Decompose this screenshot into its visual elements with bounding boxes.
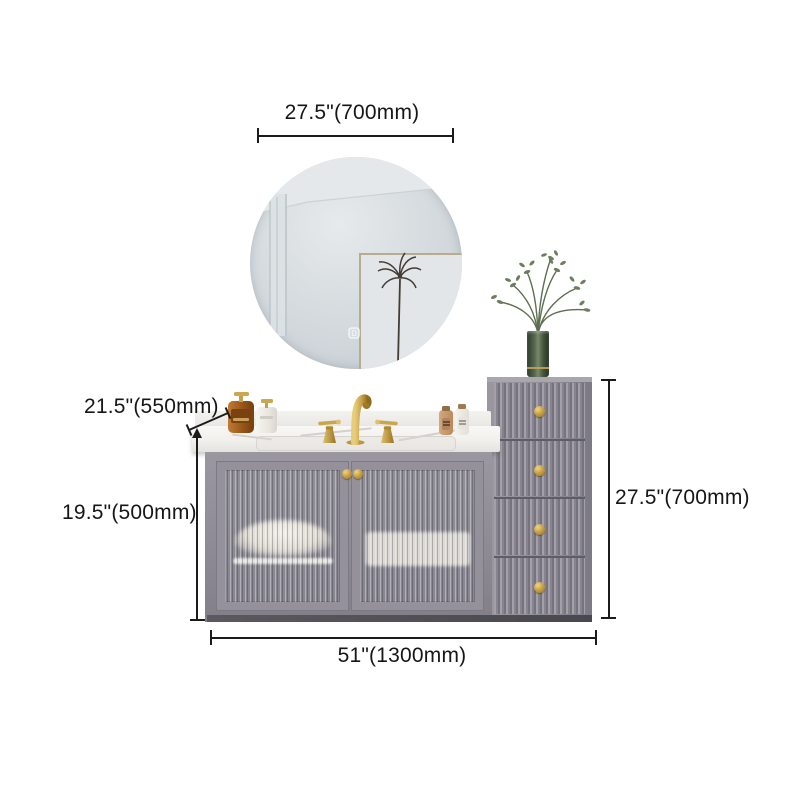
dim-vanity-height-label: 19.5"(500mm)	[62, 501, 197, 524]
drawer-knob-4	[534, 582, 545, 593]
round-mirror	[250, 157, 462, 369]
left-door-reeded-glass	[225, 470, 340, 602]
drawer-knob-3	[534, 524, 545, 535]
toiletry-bottle-tan	[439, 410, 453, 435]
mirror-reflection-wall-art	[360, 253, 462, 369]
dim-side-height-label: 27.5"(700mm)	[615, 486, 750, 509]
vase-gold-band	[527, 367, 549, 369]
faucet-spout	[347, 398, 370, 445]
gold-faucet	[315, 391, 405, 445]
dim-side-height-line	[608, 380, 610, 619]
drawer-knob-2	[534, 465, 545, 476]
mirror-reflection	[250, 157, 462, 369]
drawer-knob-1	[534, 406, 545, 417]
cabinet-base-shadow	[207, 615, 592, 622]
plant-vase	[527, 331, 549, 377]
right-glass-door	[351, 461, 484, 611]
product-image: 27.5"(700mm)	[0, 0, 800, 800]
dim-tick	[210, 630, 212, 645]
dim-tick	[190, 619, 205, 621]
toiletry-bottle-white	[455, 408, 469, 435]
dim-tick	[595, 630, 597, 645]
plant-branches	[465, 250, 610, 338]
dim-total-width-label: 51"(1300mm)	[292, 644, 512, 667]
dim-tick	[452, 128, 454, 143]
left-glass-door	[216, 461, 349, 611]
mirror-touch-sensor-icon	[349, 328, 359, 338]
right-door-reeded-glass	[360, 470, 475, 602]
dim-mirror-width-label: 27.5"(700mm)	[252, 101, 452, 124]
dim-tick	[257, 128, 259, 143]
soap-bottle-white	[256, 399, 277, 433]
door-knob-left	[342, 469, 352, 479]
dim-mirror-width-line	[258, 135, 454, 137]
side-cabinet-top	[487, 377, 592, 382]
faucet-left-handle	[320, 420, 341, 443]
dim-tick	[601, 379, 616, 381]
door-knob-right	[353, 469, 363, 479]
dim-vanity-height-line	[196, 437, 198, 620]
mirror-reflection-door-frame	[270, 194, 287, 336]
faucet-right-handle	[375, 420, 396, 443]
dim-tick	[601, 617, 616, 619]
dim-total-width-line	[211, 637, 597, 639]
dim-depth-line	[183, 403, 235, 437]
